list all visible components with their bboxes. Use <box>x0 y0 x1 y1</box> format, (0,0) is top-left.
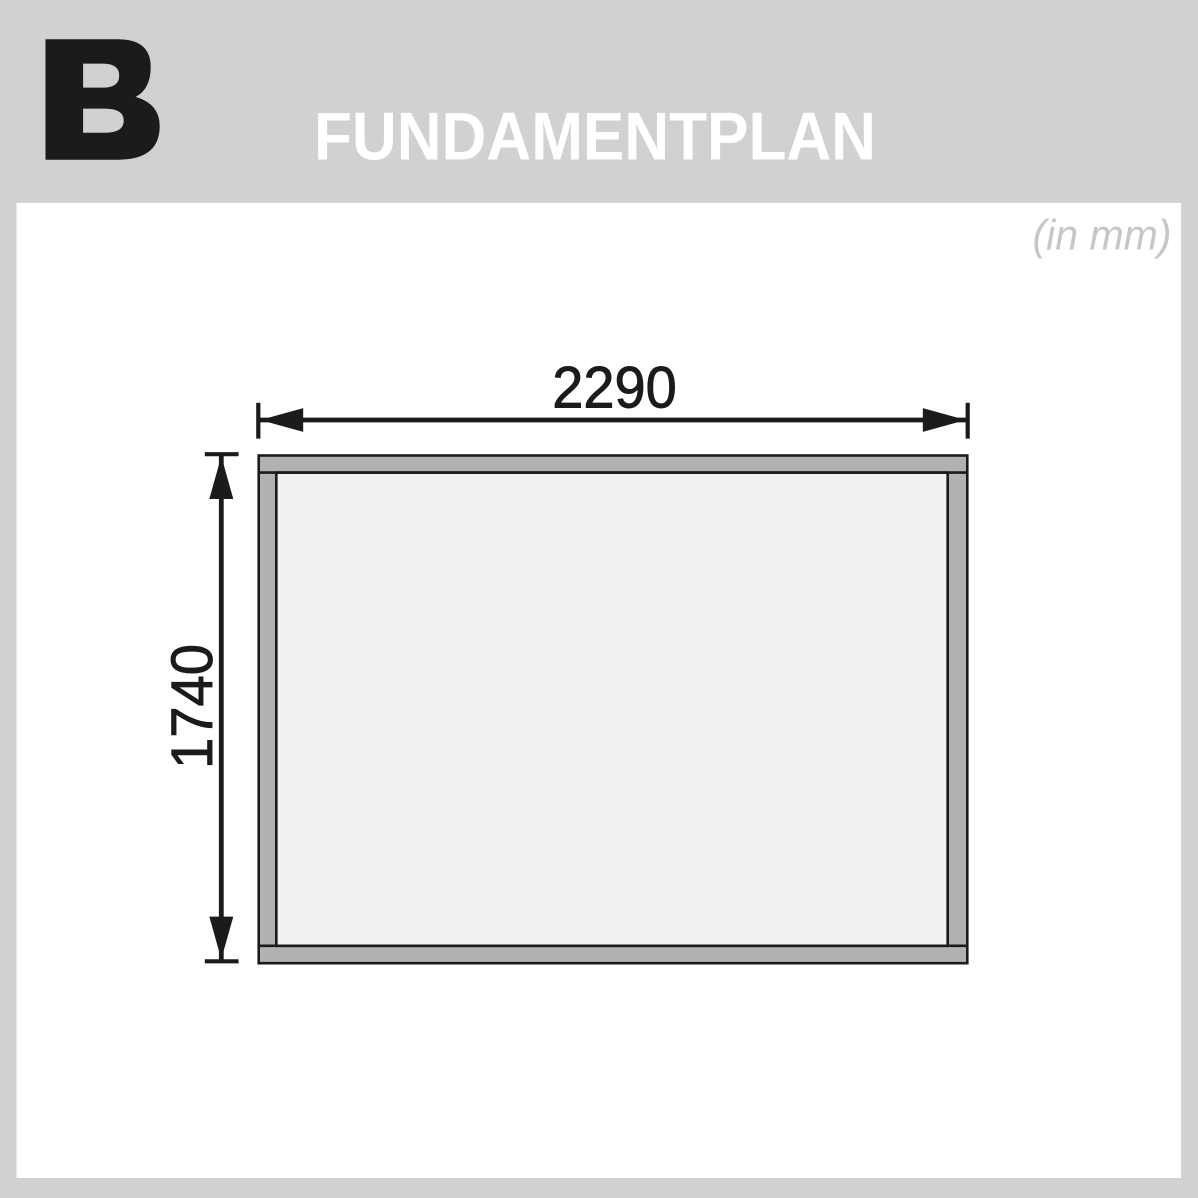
svg-text:FUNDAMENTPLAN: FUNDAMENTPLAN <box>314 100 876 175</box>
svg-text:1740: 1740 <box>160 644 225 769</box>
svg-text:2290: 2290 <box>552 355 677 420</box>
svg-text:(in mm): (in mm) <box>1033 212 1172 260</box>
